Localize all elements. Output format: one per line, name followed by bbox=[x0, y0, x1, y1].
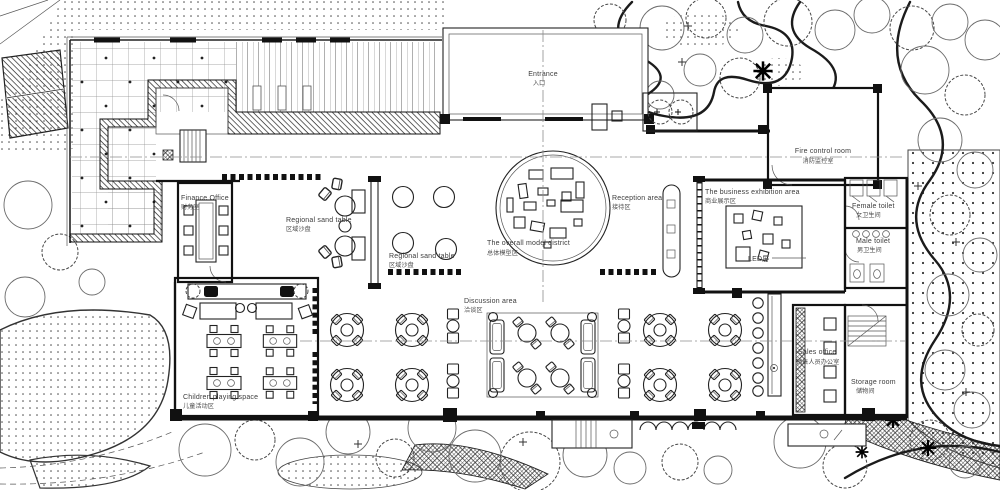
entrance-forecourt: Entrance 入口 bbox=[440, 28, 654, 124]
label-children-zh: 儿童活动区 bbox=[183, 402, 214, 410]
label-reception-en: Reception area bbox=[612, 195, 662, 202]
label-business-exhibit-en: The business exhibition area bbox=[705, 189, 800, 196]
label-finance-en: Finance Office bbox=[181, 195, 229, 202]
label-led-screen: LED屏 bbox=[748, 255, 769, 263]
label-storage-en: Storage room bbox=[851, 379, 896, 386]
label-fire-control-en: Fire control room bbox=[795, 148, 851, 155]
floor-plan-drawing: Entrance 入口 Fire control room 消防监控室 Fema… bbox=[0, 0, 1000, 490]
label-female-toilet-zh: 女卫生间 bbox=[856, 211, 881, 219]
label-female-toilet-en: Female toilet bbox=[852, 203, 895, 210]
outbuilding-roof bbox=[2, 50, 68, 138]
label-sales-office-zh: 销售人员办公室 bbox=[796, 358, 839, 366]
label-sand-table-2-en: Regional sand table bbox=[389, 253, 455, 260]
label-sales-office-en: Sales office bbox=[798, 349, 836, 356]
south-porches bbox=[552, 420, 866, 448]
label-discussion-en: Discussion area bbox=[464, 298, 517, 305]
label-male-toilet-zh: 男卫生间 bbox=[857, 246, 882, 254]
label-male-toilet-en: Male toilet bbox=[856, 238, 890, 245]
label-sand-table-1-en: Regional sand table bbox=[286, 217, 352, 224]
label-sand-table-2-zh: 区域沙盘 bbox=[389, 261, 414, 269]
label-fire-control-zh: 消防监控室 bbox=[803, 157, 834, 165]
label-reception-zh: 接待区 bbox=[612, 203, 631, 211]
label-overall-model-zh: 总体模型区 bbox=[487, 249, 518, 257]
label-business-exhibit-zh: 商业展示区 bbox=[705, 197, 736, 205]
floor-plan-canvas: Entrance 入口 Fire control room 消防监控室 Fema… bbox=[0, 0, 1000, 490]
label-discussion-zh: 洽谈区 bbox=[464, 306, 483, 314]
label-overall-model-en: The overall model district bbox=[487, 240, 570, 247]
label-children-en: Children playing space bbox=[183, 394, 258, 401]
label-finance-zh: 财务室 bbox=[181, 203, 200, 211]
label-storage-zh: 储物间 bbox=[856, 387, 875, 395]
label-sand-table-1-zh: 区域沙盘 bbox=[286, 225, 311, 233]
